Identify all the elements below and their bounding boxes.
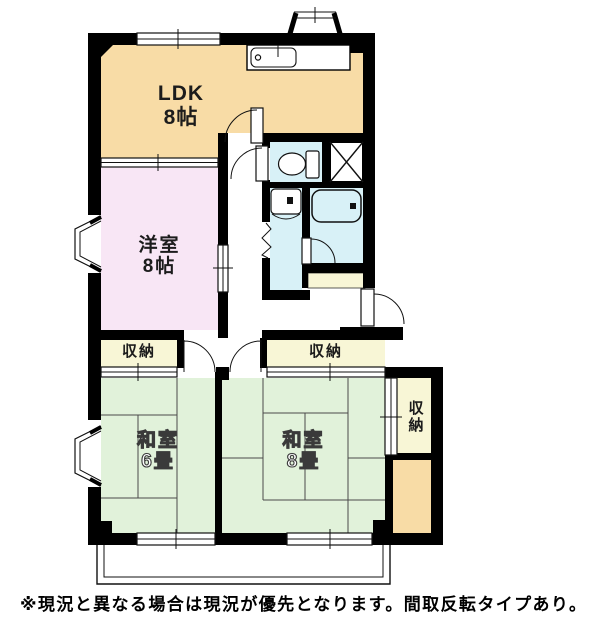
ldk-name: LDK — [141, 82, 221, 106]
floor-plan: LDK 8帖 洋室 8帖 和室 6畳 和室 8畳 収納 収納 収納 ※現況と異な… — [0, 0, 605, 627]
bay-window-icon — [75, 426, 101, 486]
western-room-name: 洋室 — [101, 235, 218, 256]
washing-machine-pan-x-icon — [330, 142, 363, 182]
western-room-label: 洋室 8帖 — [101, 235, 218, 278]
tatami6-label: 和室 6畳 — [101, 430, 215, 473]
floor-plan-canvas — [0, 0, 605, 627]
tatami8-name: 和室 — [222, 430, 385, 451]
closet-side-label: 収納 — [397, 384, 431, 450]
door-swing-icon — [184, 340, 215, 372]
western-room-size: 8帖 — [101, 256, 218, 277]
entrance-door-swing-icon — [361, 289, 404, 326]
room-bath — [310, 188, 363, 263]
tatami8-label: 和室 8畳 — [222, 430, 385, 473]
tatami6-name: 和室 — [101, 430, 215, 451]
balcony-outline — [97, 545, 390, 584]
shoe-cabinet — [308, 273, 365, 288]
tatami6-size: 6畳 — [101, 451, 215, 472]
door-swing-icon — [230, 340, 261, 372]
washbasin-icon — [271, 189, 301, 219]
closet-left-label: 収納 — [101, 344, 177, 361]
door-swing-icon — [231, 146, 268, 181]
room-entry — [393, 460, 431, 533]
tatami8-size: 8畳 — [222, 451, 385, 472]
ldk-size: 8帖 — [141, 106, 221, 130]
folding-door-icon — [262, 222, 271, 258]
closet-right-label: 収納 — [267, 344, 385, 361]
kitchen-sink-icon — [247, 45, 350, 70]
disclaimer-note: ※現況と異なる場合は現況が優先となります。間取反転タイプあり。 — [20, 590, 604, 615]
bay-window-icon — [75, 216, 101, 272]
ldk-label: LDK 8帖 — [141, 82, 221, 129]
